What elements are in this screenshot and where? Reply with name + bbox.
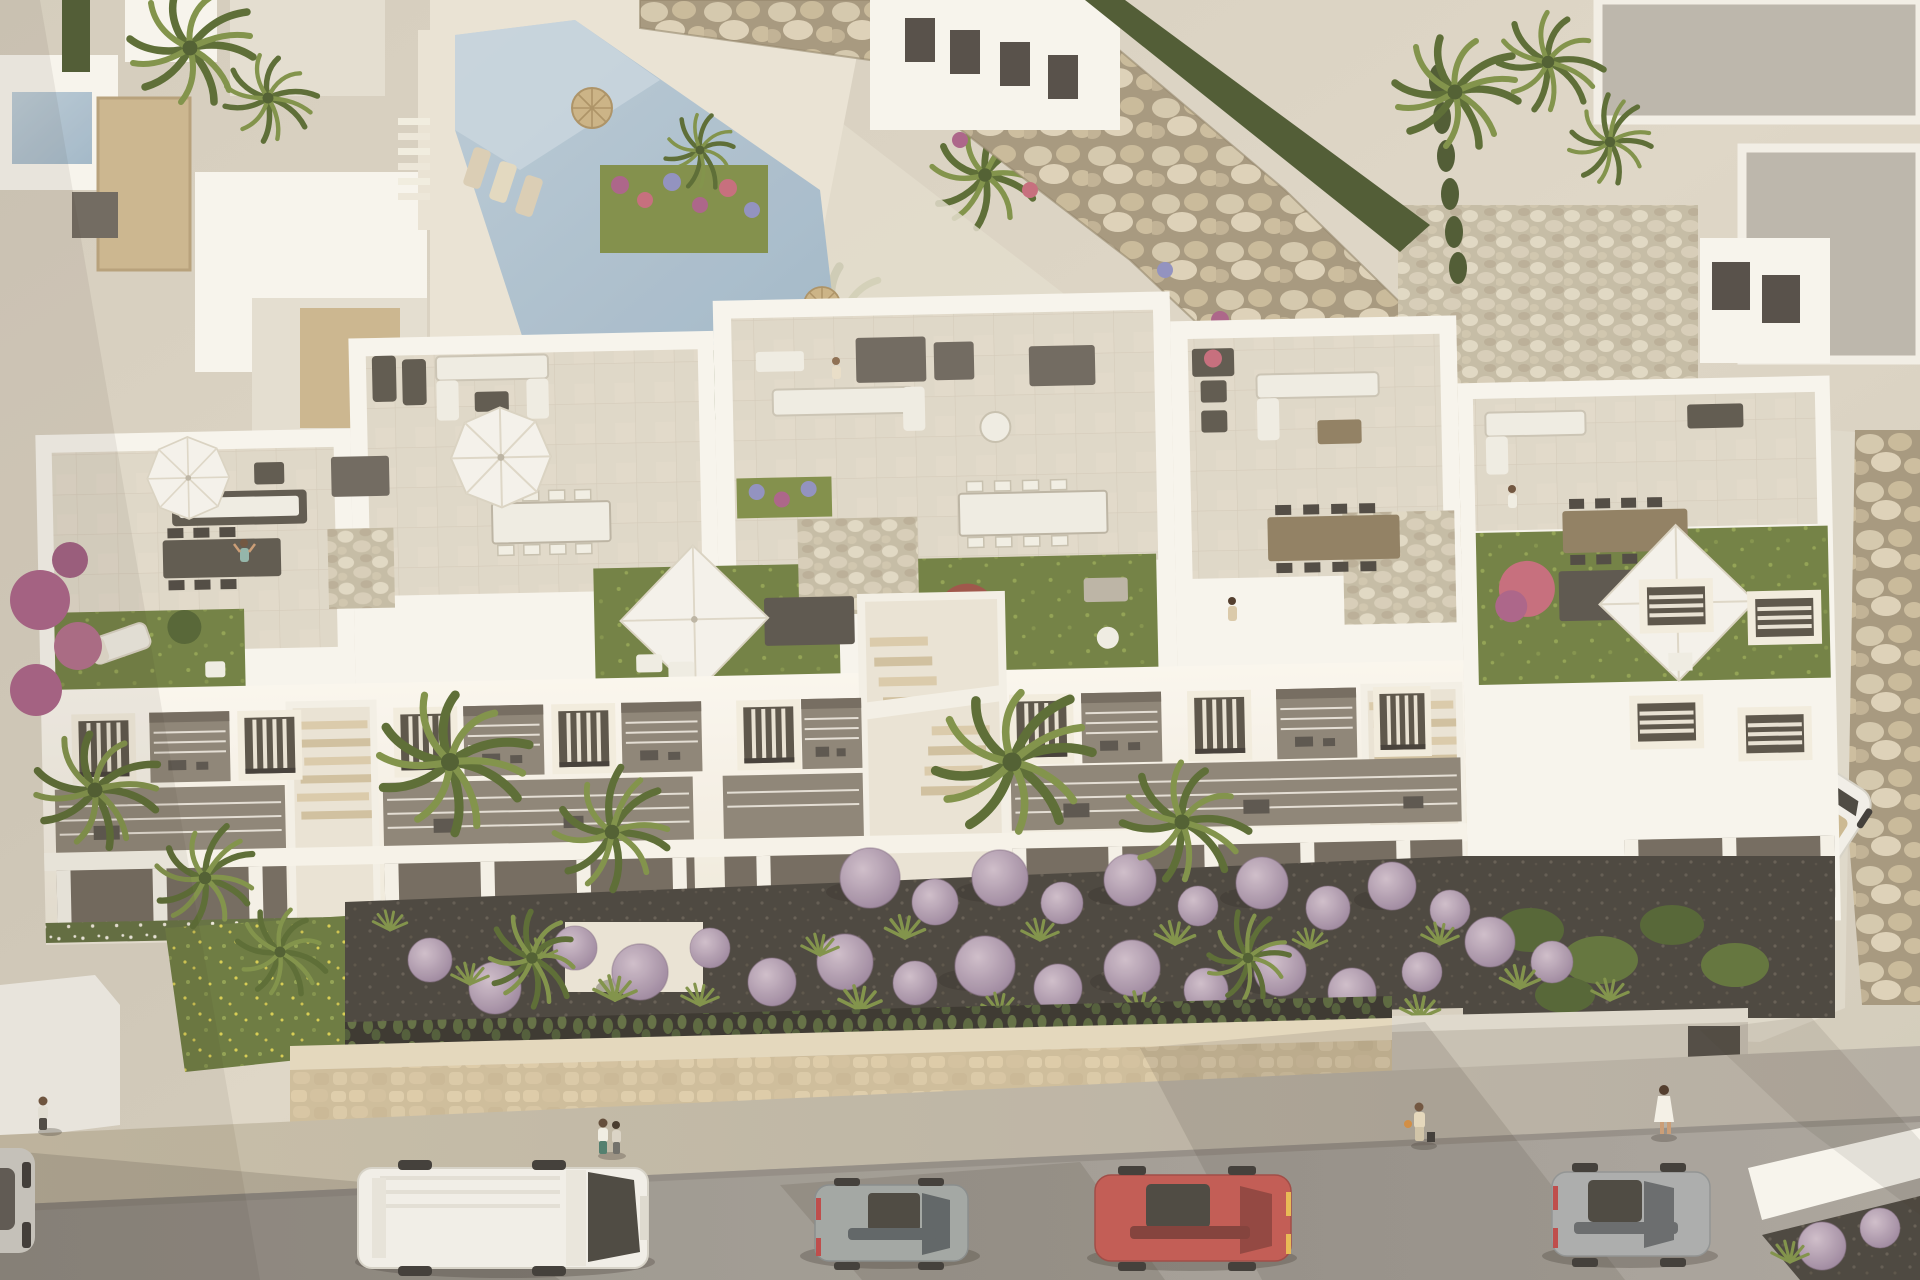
rendered-scene bbox=[0, 0, 1920, 1280]
aerial-render-canvas bbox=[0, 0, 1920, 1280]
warm-light-overlay bbox=[0, 0, 1920, 1280]
